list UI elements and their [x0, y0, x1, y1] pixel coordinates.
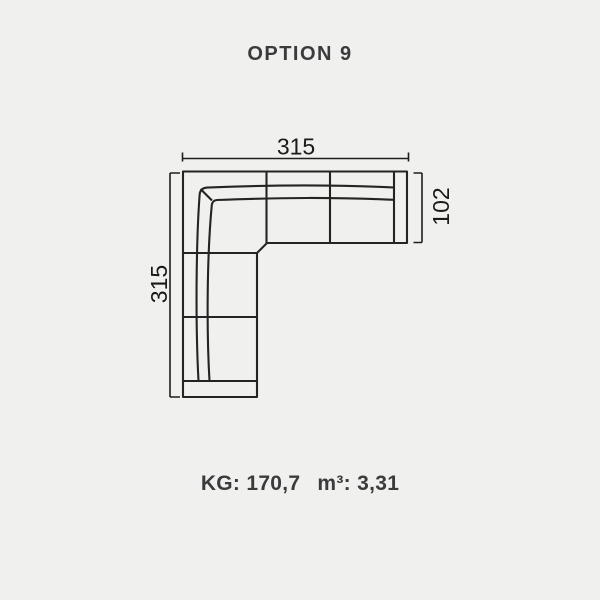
weight-spec: KG: 170,7: [201, 470, 301, 497]
dim-label-right-arm-depth: 102: [428, 187, 454, 225]
volume-spec: m³: 3,31: [317, 470, 399, 497]
sofa-outline: [183, 172, 407, 398]
catalog-page: OPTION 9 315 315 102 KG: 170,7 m³: 3,31: [0, 0, 600, 600]
dim-line-right: [414, 173, 423, 243]
sofa-diagram: 315 315 102: [0, 0, 600, 600]
specs-footer: KG: 170,7 m³: 3,31: [0, 470, 600, 497]
dim-label-left-height: 315: [146, 265, 172, 303]
backrest-rear-line: [197, 185, 394, 381]
dim-label-top-width: 315: [277, 134, 315, 160]
backrest-front-line: [208, 198, 394, 381]
corner-seam-line: [201, 189, 213, 201]
sofa-top-view: [183, 172, 407, 398]
